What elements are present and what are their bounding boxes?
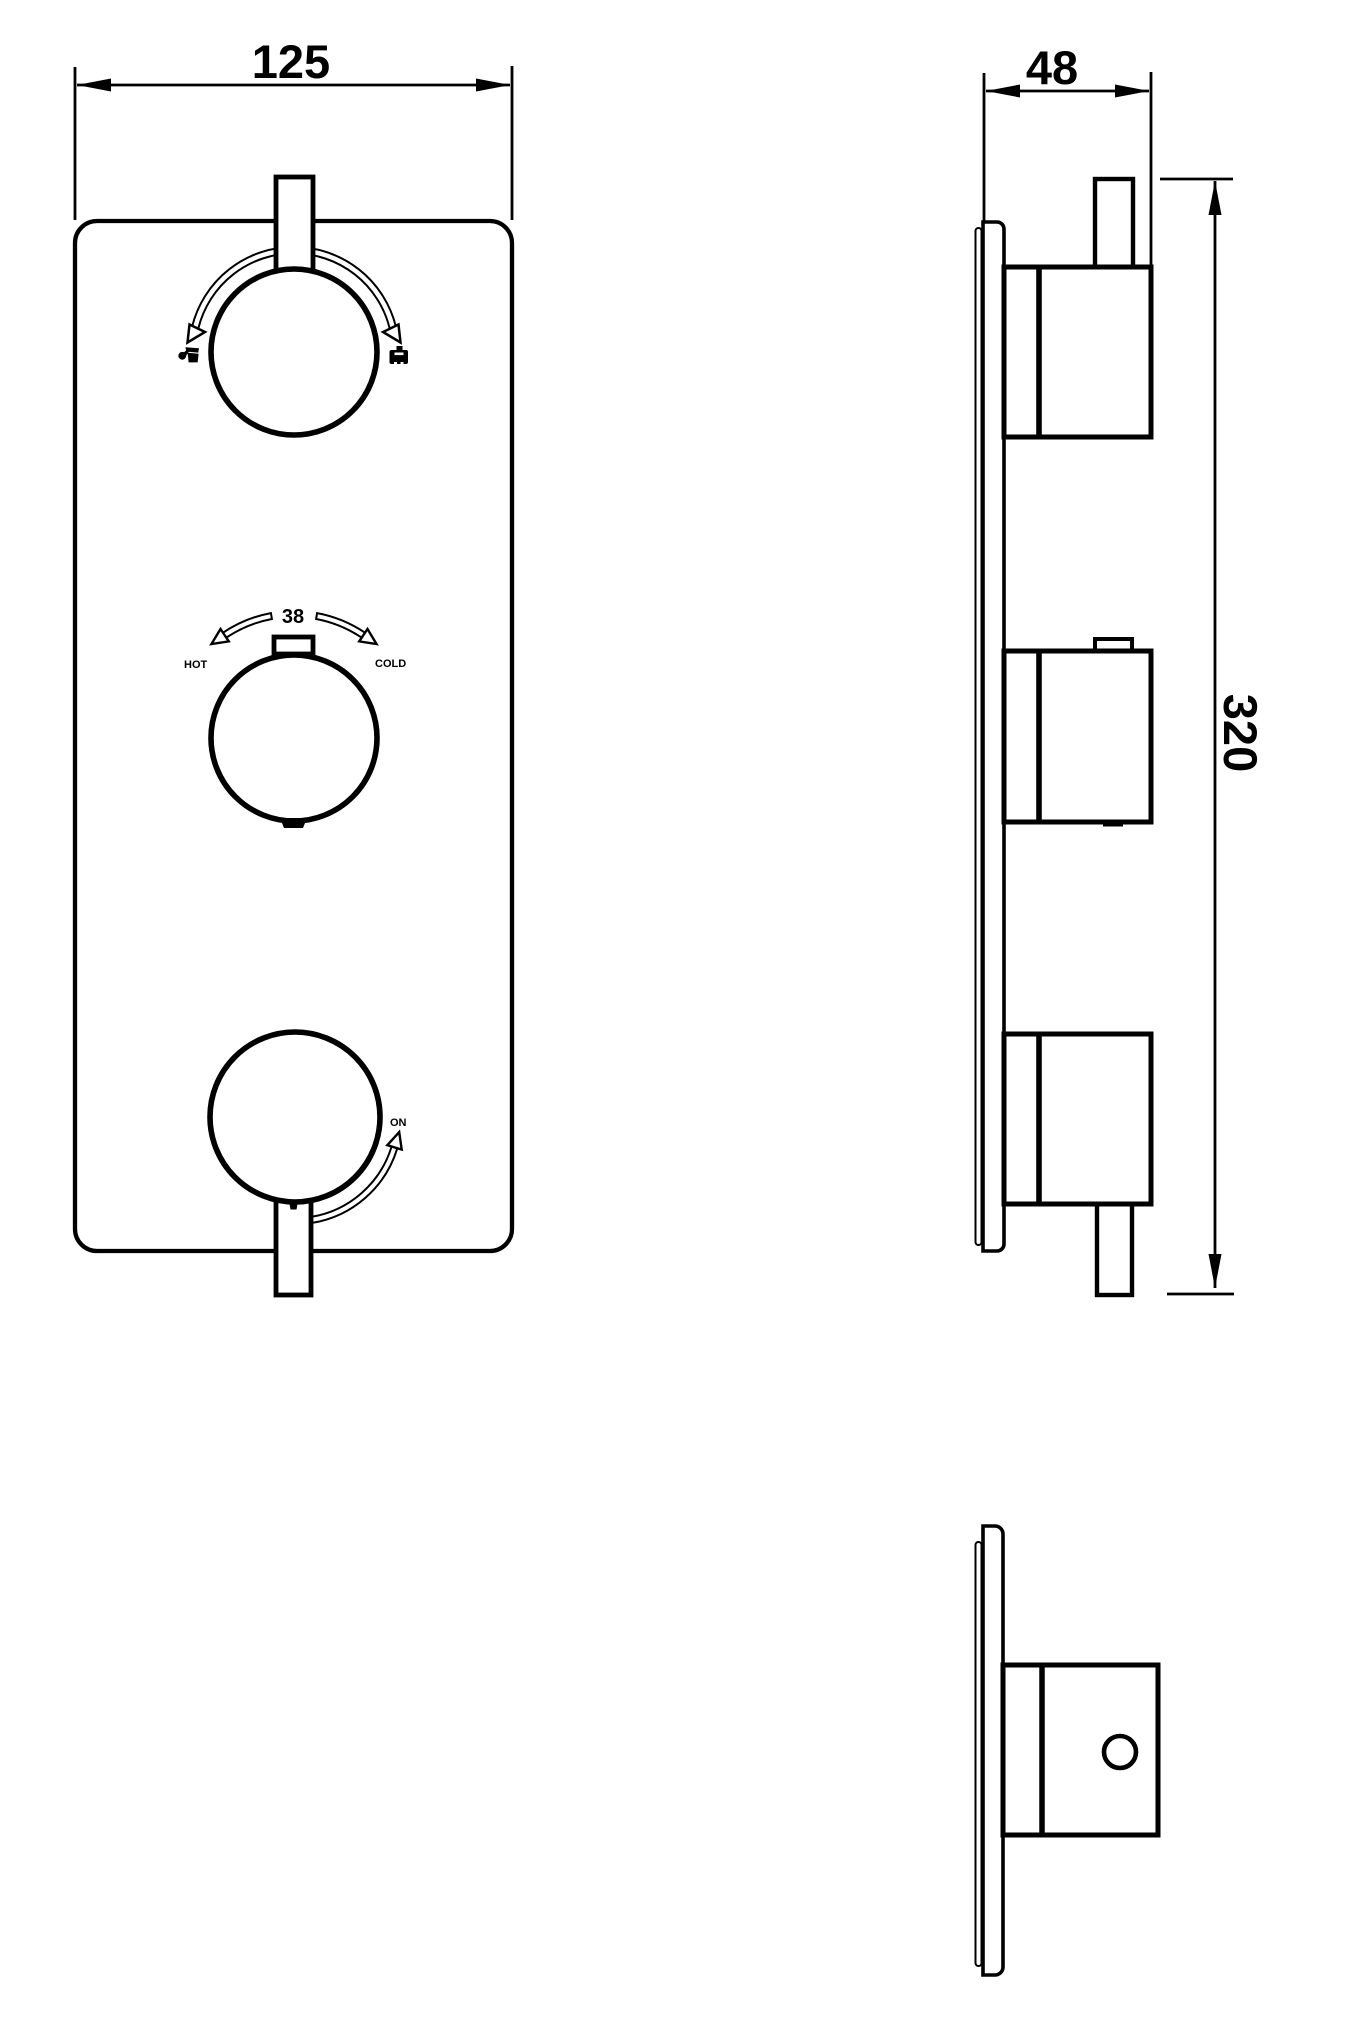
svg-text:COLD: COLD xyxy=(375,658,406,670)
svg-text:320: 320 xyxy=(1214,694,1267,772)
svg-text:38: 38 xyxy=(282,606,304,628)
svg-text:48: 48 xyxy=(1026,41,1078,94)
svg-text:125: 125 xyxy=(252,35,330,88)
svg-text:ON: ON xyxy=(390,1117,407,1129)
svg-text:HOT: HOT xyxy=(184,659,208,671)
